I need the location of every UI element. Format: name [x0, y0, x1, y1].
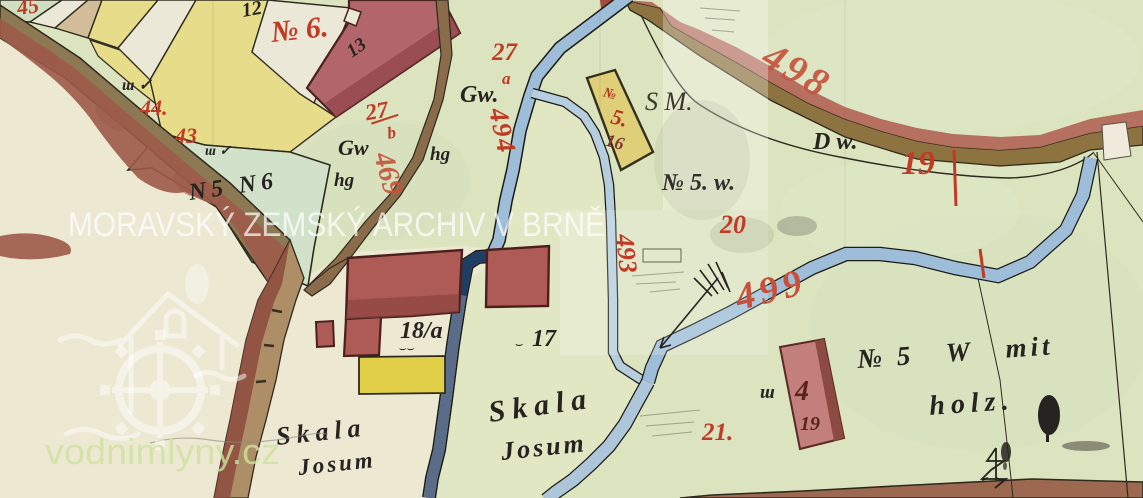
svg-text:hg: hg: [430, 144, 450, 165]
svg-text:Gw: Gw: [338, 135, 369, 160]
svg-text:holz.: holz.: [928, 385, 1015, 422]
svg-text:19: 19: [901, 145, 935, 182]
svg-text:№ 5. w.: № 5. w.: [661, 170, 735, 196]
svg-text:Gw.: Gw.: [460, 82, 498, 108]
svg-text:12: 12: [240, 0, 264, 22]
svg-text:MORAVSKÝ ZEMSKÝ ARCHIV V BRNĚ: MORAVSKÝ ZEMSKÝ ARCHIV V BRNĚ: [68, 206, 605, 244]
svg-text:493: 493: [610, 232, 643, 275]
svg-text:21.: 21.: [701, 419, 733, 446]
svg-text:43: 43: [174, 123, 197, 148]
svg-text:27: 27: [491, 39, 519, 66]
svg-text:4: 4: [794, 376, 809, 407]
svg-text:№ 6.: № 6.: [268, 10, 330, 49]
svg-text:a: a: [502, 69, 511, 88]
svg-text:⌣⌣: ⌣⌣: [398, 341, 415, 355]
svg-text:20: 20: [719, 210, 746, 239]
svg-text:17: 17: [532, 326, 557, 352]
svg-text:D w.: D w.: [812, 129, 857, 155]
svg-text:vodnimlyny.cz: vodnimlyny.cz: [45, 431, 280, 472]
svg-text:⌣: ⌣: [514, 336, 523, 351]
svg-text:hg: hg: [334, 170, 354, 191]
svg-text:ɯ ✓: ɯ ✓: [122, 77, 152, 94]
svg-text:ɯ ✓: ɯ ✓: [205, 144, 231, 159]
svg-text:44.: 44.: [139, 95, 168, 120]
svg-text:ɯ: ɯ: [760, 382, 775, 403]
svg-text:S M.: S M.: [645, 87, 693, 116]
svg-text:19: 19: [800, 413, 820, 435]
svg-text:45: 45: [14, 0, 40, 20]
